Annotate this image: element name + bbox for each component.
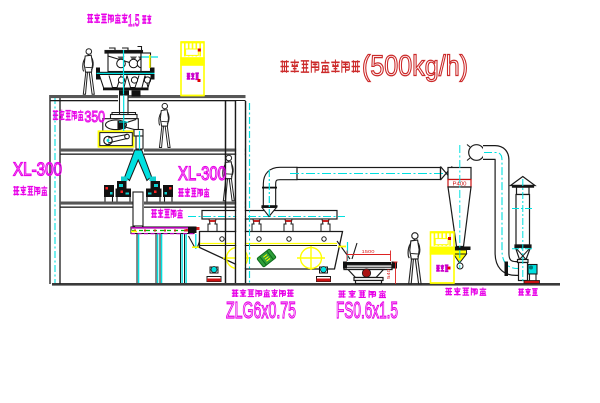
svg-text:(500kg/h): (500kg/h) [362,51,468,83]
svg-text:350: 350 [85,109,106,126]
svg-text:540: 540 [386,269,392,279]
svg-text:1.5: 1.5 [128,11,140,30]
svg-text:1500: 1500 [362,249,375,255]
svg-text:XL-300: XL-300 [13,160,62,180]
svg-text:FS0.6x1.5: FS0.6x1.5 [336,297,398,323]
svg-text:ZLG6x0.75: ZLG6x0.75 [226,297,296,323]
svg-text:XL-300: XL-300 [178,164,226,185]
